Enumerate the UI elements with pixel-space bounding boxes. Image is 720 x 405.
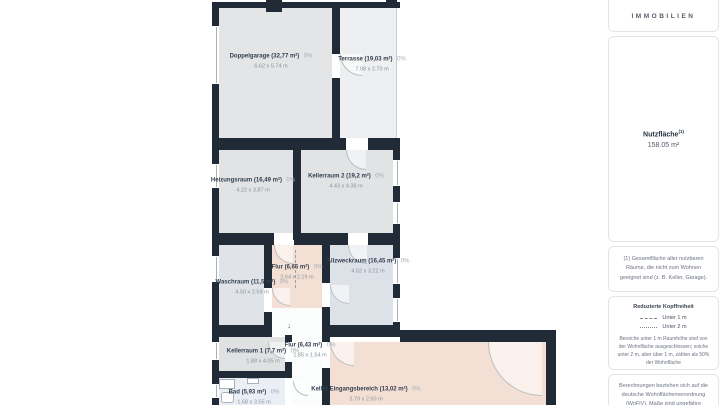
footnote-box: (1) Gesamtfläche aller nutzbaren Räume, … [608, 246, 719, 292]
window [212, 384, 219, 398]
stair-direction-arrow: ↓ [287, 322, 291, 330]
dashed-line-icon [640, 318, 657, 319]
door-opening [322, 283, 330, 307]
wall-segment [332, 78, 340, 144]
wall-segment [212, 233, 274, 245]
disclaimer-text: Berechnungen beziehen sich auf die deuts… [617, 382, 710, 405]
chimney-block [266, 0, 282, 12]
legend-title: Reduzierte Kopffreiheit [615, 304, 712, 310]
footnote-text: (1) Gesamtfläche aller nutzbaren Räume, … [609, 255, 718, 282]
room-label-flur-og: Flur (6,65 m²) 0% 2.64 x 2.19 m [272, 256, 323, 281]
room-label-heizungsraum: Heizungsraum (16,49 m²) 0% 4.22 x 3.87 m [211, 169, 295, 194]
wall-segment [212, 2, 400, 8]
room-terrasse [340, 8, 397, 138]
room-kellerraum-2 [301, 150, 393, 233]
legend-item-under-2m: Unter 2 m [615, 324, 712, 330]
room-label-eingangsbereich: Keller Eingangsbereich (13,02 m²) 0% 3.7… [311, 378, 421, 403]
room-label-flur-ug: Flur (6,43 m²) 0% 1.85 x 1.54 m [285, 334, 336, 359]
usable-area-title: Nutzfläche(1) [643, 129, 684, 138]
window [212, 26, 219, 84]
wall-segment [386, 0, 397, 6]
brand-wordmark: IMMOBILIEN [632, 13, 696, 20]
legend-item-under-1m: Unter 1 m [615, 315, 712, 321]
floorplan-page: ↓ Doppelgarage (32,77 m²) 0% 6.62 x 5.74… [0, 0, 720, 405]
window [393, 298, 400, 322]
wall-segment [212, 138, 346, 150]
wall-segment [400, 330, 556, 342]
room-label-terrasse: Terrasse (19,03 m²) 0% 7.08 x 2.70 m [338, 48, 405, 73]
headroom-legend-box: Reduzierte Kopffreiheit Unter 1 m Unter … [608, 296, 719, 370]
wall-segment [546, 330, 556, 405]
room-label-kellerraum-2: Kellerraum 2 (19,2 m²) 0% 4.43 x 4.38 m [308, 165, 384, 190]
wall-segment [212, 325, 272, 337]
window [212, 342, 219, 360]
room-label-doppelgarage: Doppelgarage (32,77 m²) 0% 6.62 x 5.74 m [230, 45, 313, 70]
stair-landing [272, 308, 322, 335]
window [393, 202, 400, 224]
room-doppelgarage [219, 8, 332, 138]
wall-segment [332, 2, 340, 54]
legend-note: Bereiche unter 1 m Raumhöhe sind von der… [615, 335, 712, 367]
wall-segment [212, 371, 292, 378]
footnote-marker: (1) [678, 129, 684, 134]
wall-segment [368, 233, 400, 245]
room-label-bad: Bad (5,93 m²) 0% 1.68 x 3.55 m [229, 381, 280, 405]
brand-box: IMMOBILIEN [608, 0, 719, 32]
dotted-line-icon [640, 327, 657, 328]
usable-area-box: Nutzfläche(1) 158.05 m² [608, 36, 719, 242]
window [393, 160, 400, 186]
usable-area-value: 158.05 m² [648, 142, 680, 149]
wall-segment [294, 233, 348, 245]
room-label-allzweckraum: Allzweckraum (16,45 m²) 0% 4.52 x 3.22 m [327, 250, 410, 275]
disclaimer-box: Berechnungen beziehen sich auf die deuts… [608, 374, 719, 405]
